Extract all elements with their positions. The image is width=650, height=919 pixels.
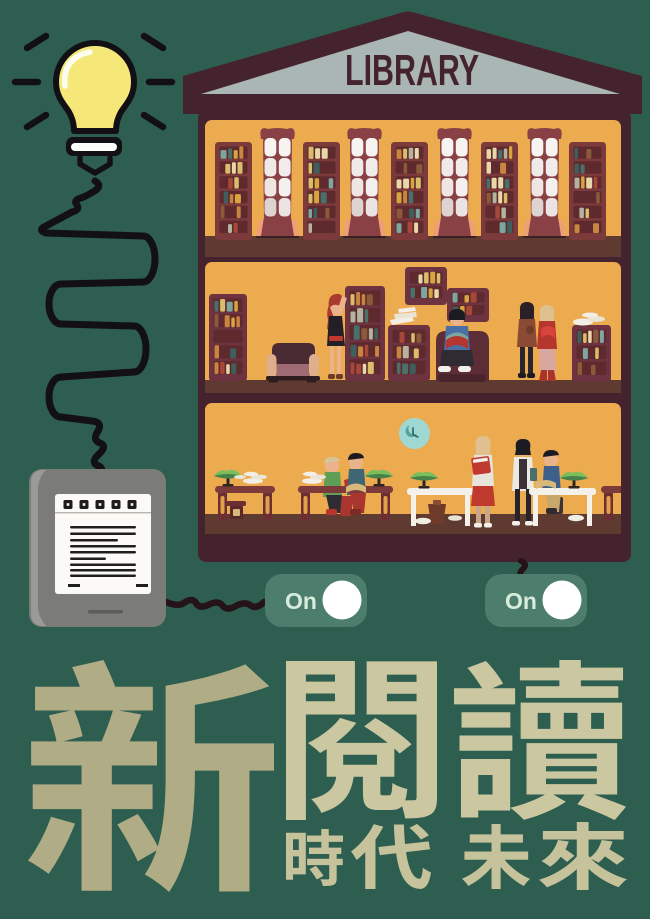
svg-text:LIBRARY: LIBRARY [345, 46, 479, 95]
svg-text:On: On [505, 588, 537, 614]
svg-text:On: On [285, 588, 317, 614]
